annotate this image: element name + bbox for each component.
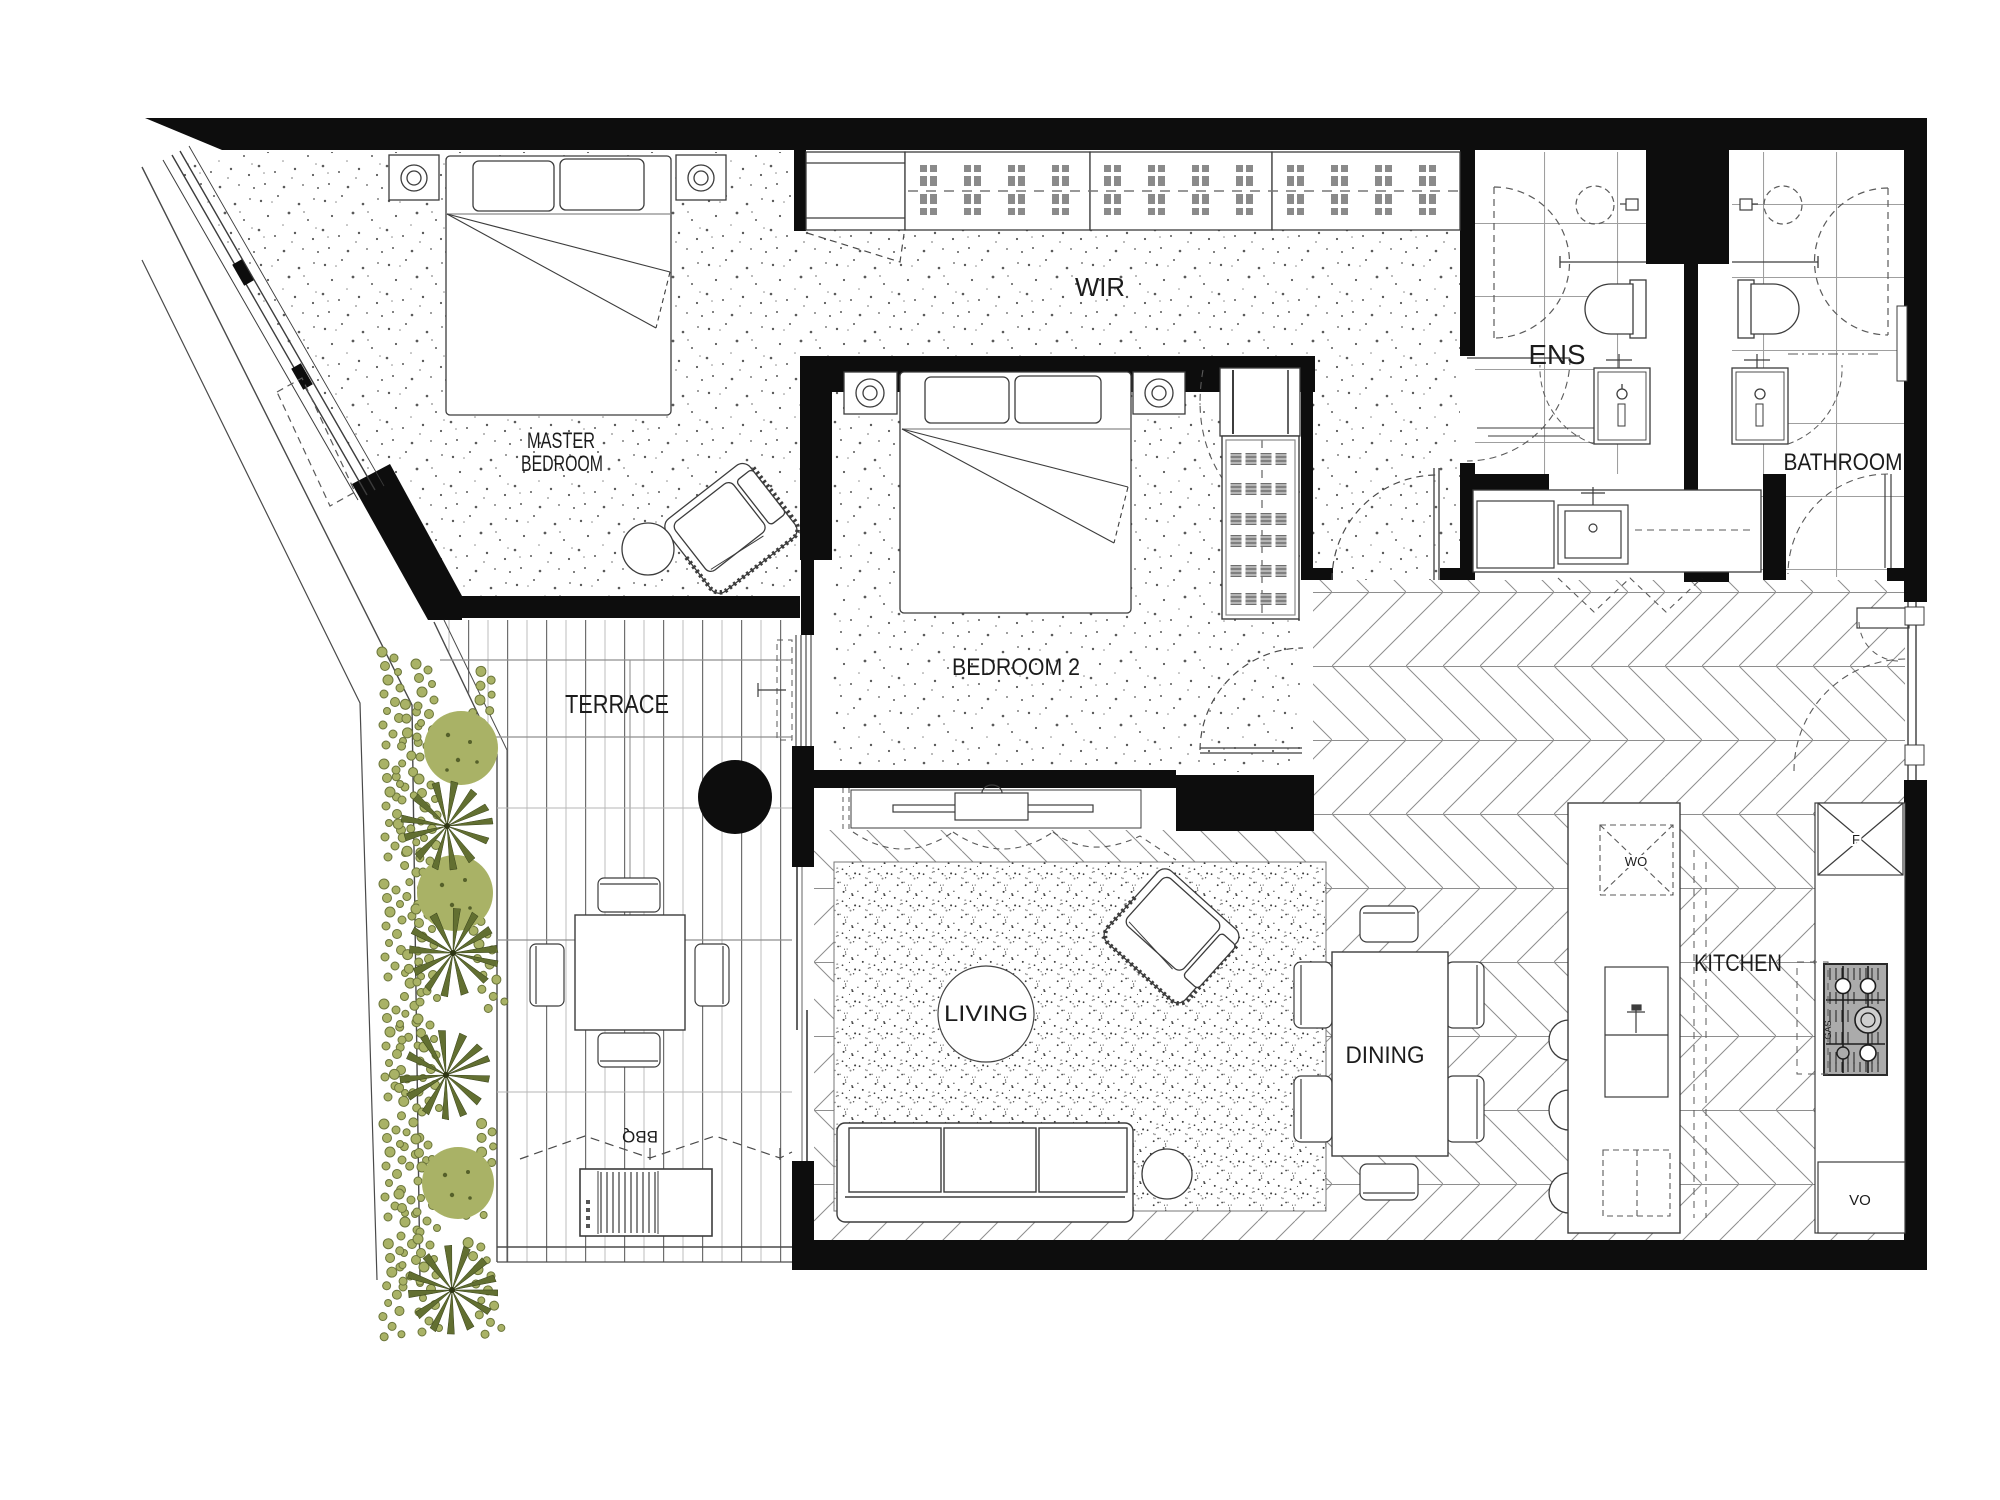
svg-text:WIR: WIR	[1075, 272, 1125, 302]
svg-text:BEDROOM: BEDROOM	[521, 451, 603, 476]
svg-text:BEDROOM 2: BEDROOM 2	[952, 654, 1080, 681]
svg-text:KITCHEN: KITCHEN	[1694, 950, 1782, 977]
svg-text:ENS: ENS	[1529, 339, 1586, 370]
svg-text:BATHROOM: BATHROOM	[1784, 449, 1903, 476]
svg-text:TERRACE: TERRACE	[565, 689, 669, 719]
svg-text:VO: VO	[1849, 1192, 1871, 1209]
svg-text:BBQ: BBQ	[622, 1127, 658, 1146]
svg-text:LIVING: LIVING	[944, 1001, 1028, 1026]
svg-text:MASTER: MASTER	[527, 428, 595, 453]
svg-text:F: F	[1852, 832, 1860, 847]
svg-text:DINING: DINING	[1346, 1042, 1425, 1069]
svg-text:WO: WO	[1625, 854, 1647, 869]
